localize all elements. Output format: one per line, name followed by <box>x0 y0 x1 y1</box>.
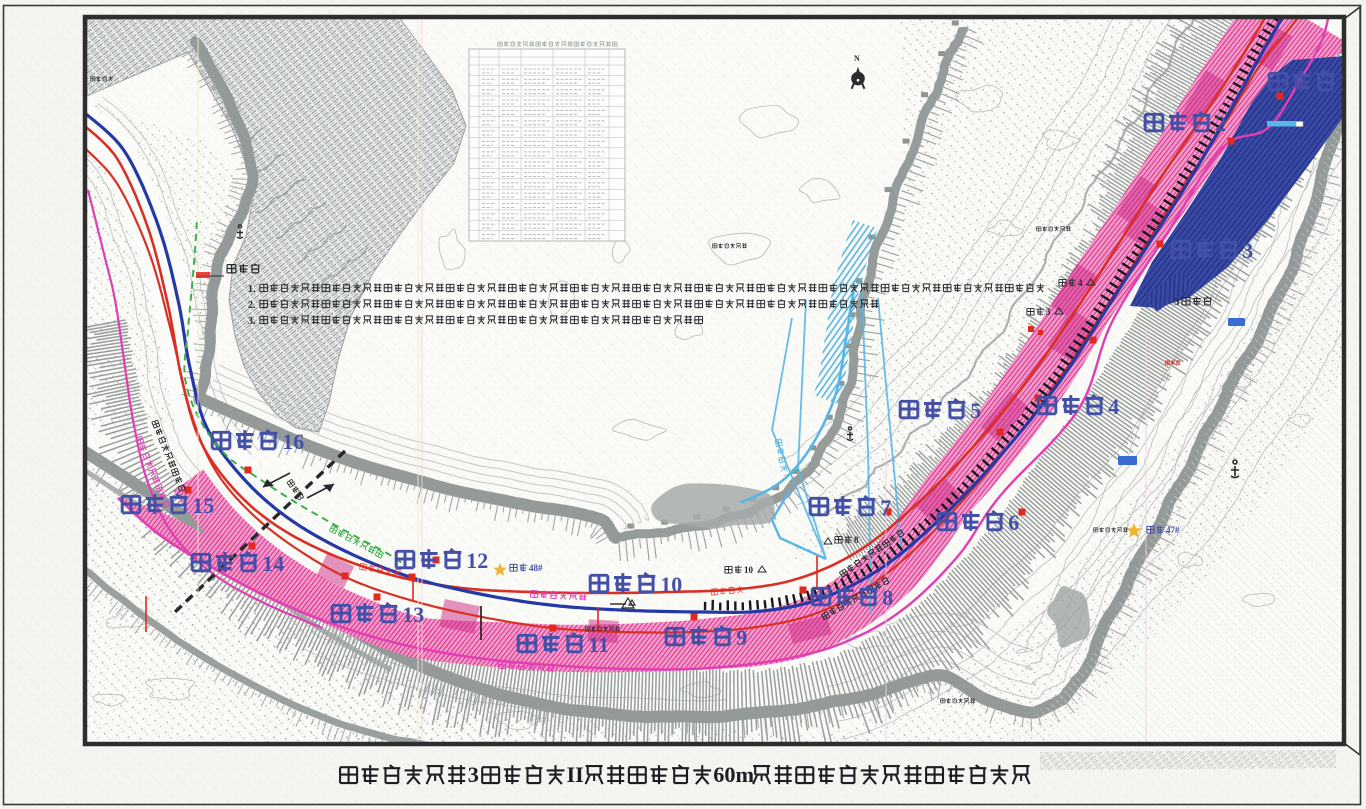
svg-text:2: 2 <box>1215 111 1226 136</box>
svg-text:8: 8 <box>882 585 893 610</box>
svg-text:12: 12 <box>466 548 488 573</box>
svg-text:10: 10 <box>744 565 754 575</box>
svg-text:3: 3 <box>468 762 479 787</box>
svg-text:60m: 60m <box>713 762 754 787</box>
svg-text:N: N <box>854 54 860 63</box>
svg-text:8: 8 <box>854 535 859 545</box>
svg-text:3: 3 <box>1174 296 1180 308</box>
svg-text:13: 13 <box>402 602 424 627</box>
svg-text:9: 9 <box>736 625 747 650</box>
svg-text:5: 5 <box>970 398 981 423</box>
svg-text:7: 7 <box>880 495 891 520</box>
svg-text:16: 16 <box>282 429 304 454</box>
svg-text:48#: 48# <box>529 563 543 573</box>
svg-text:3.: 3. <box>248 316 256 327</box>
svg-text:14: 14 <box>262 551 284 576</box>
svg-text:15: 15 <box>192 493 214 518</box>
svg-text:4: 4 <box>1108 394 1119 419</box>
svg-text:3: 3 <box>1046 307 1051 317</box>
svg-text:II: II <box>567 762 584 787</box>
svg-text:6: 6 <box>1008 510 1019 535</box>
svg-text:3: 3 <box>1242 238 1253 263</box>
svg-text:47#: 47# <box>1166 525 1180 535</box>
svg-text:2.: 2. <box>248 300 256 311</box>
svg-text:10: 10 <box>660 572 682 597</box>
svg-text:11: 11 <box>588 632 609 657</box>
svg-text:4: 4 <box>1078 278 1083 288</box>
svg-text:1.: 1. <box>248 284 256 295</box>
